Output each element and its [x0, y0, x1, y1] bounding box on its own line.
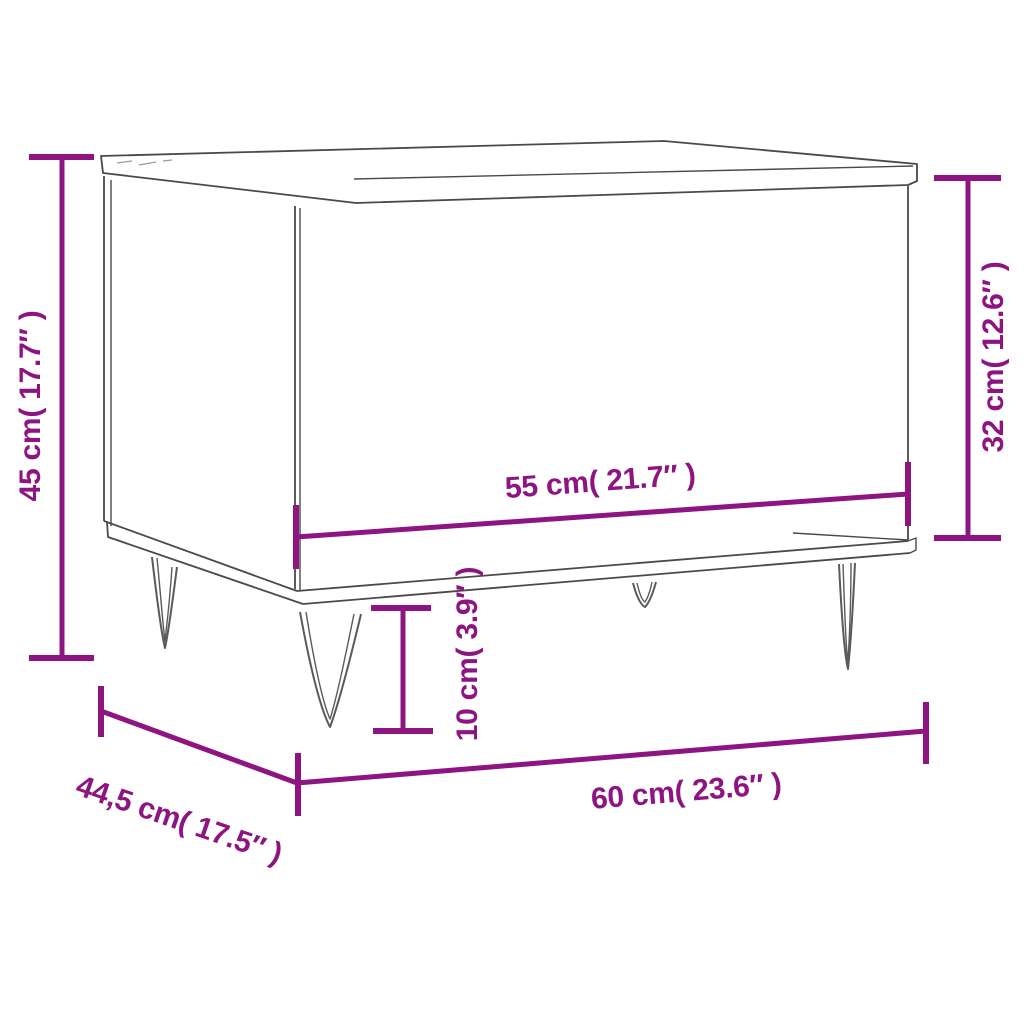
- table-left-bottom-edge: [104, 521, 297, 591]
- table-left-plinth-bottom: [107, 522, 303, 604]
- tabletop-slab: [101, 141, 917, 203]
- leg-height-label: 10 cm( 3.9″ ): [451, 567, 484, 742]
- table-bottom-right-cap: [908, 538, 916, 553]
- dimension-leg-height: [371, 608, 433, 731]
- table-front-plinth-bottom: [303, 553, 910, 604]
- body-width-label: 55 cm( 21.7″ ): [504, 458, 697, 505]
- total-width-label: 60 cm( 23.6″ ): [590, 767, 783, 816]
- depth-line: [101, 711, 297, 783]
- depth-label: 44,5 cm( 17.5″ ): [72, 769, 287, 870]
- body-width-line: [296, 494, 908, 537]
- hairpin-leg-back-left: [152, 557, 177, 648]
- tabletop-grain-marks: [117, 160, 172, 165]
- table-drawing: [101, 141, 917, 727]
- hairpin-leg-front-left: [300, 612, 361, 727]
- dimension-depth: [101, 686, 297, 783]
- hairpin-leg-front-right: [839, 563, 855, 669]
- dimension-labels: 45 cm( 17.7″ ) 32 cm( 12.6″ ) 55 cm( 21.…: [14, 262, 1010, 871]
- total-width-line: [297, 731, 926, 783]
- table-front-bottom-edge: [297, 541, 908, 591]
- table-back-bottom-line: [793, 533, 908, 540]
- diagram-canvas: 45 cm( 17.7″ ) 32 cm( 12.6″ ) 55 cm( 21.…: [0, 0, 1024, 1024]
- tabletop-front-edge: [354, 166, 913, 179]
- body-height-label: 32 cm( 12.6″ ): [977, 262, 1010, 453]
- total-height-label: 45 cm( 17.7″ ): [14, 311, 47, 502]
- furniture-dimension-diagram: 45 cm( 17.7″ ) 32 cm( 12.6″ ) 55 cm( 21.…: [0, 0, 1024, 1024]
- hairpin-leg-back-right: [633, 582, 656, 607]
